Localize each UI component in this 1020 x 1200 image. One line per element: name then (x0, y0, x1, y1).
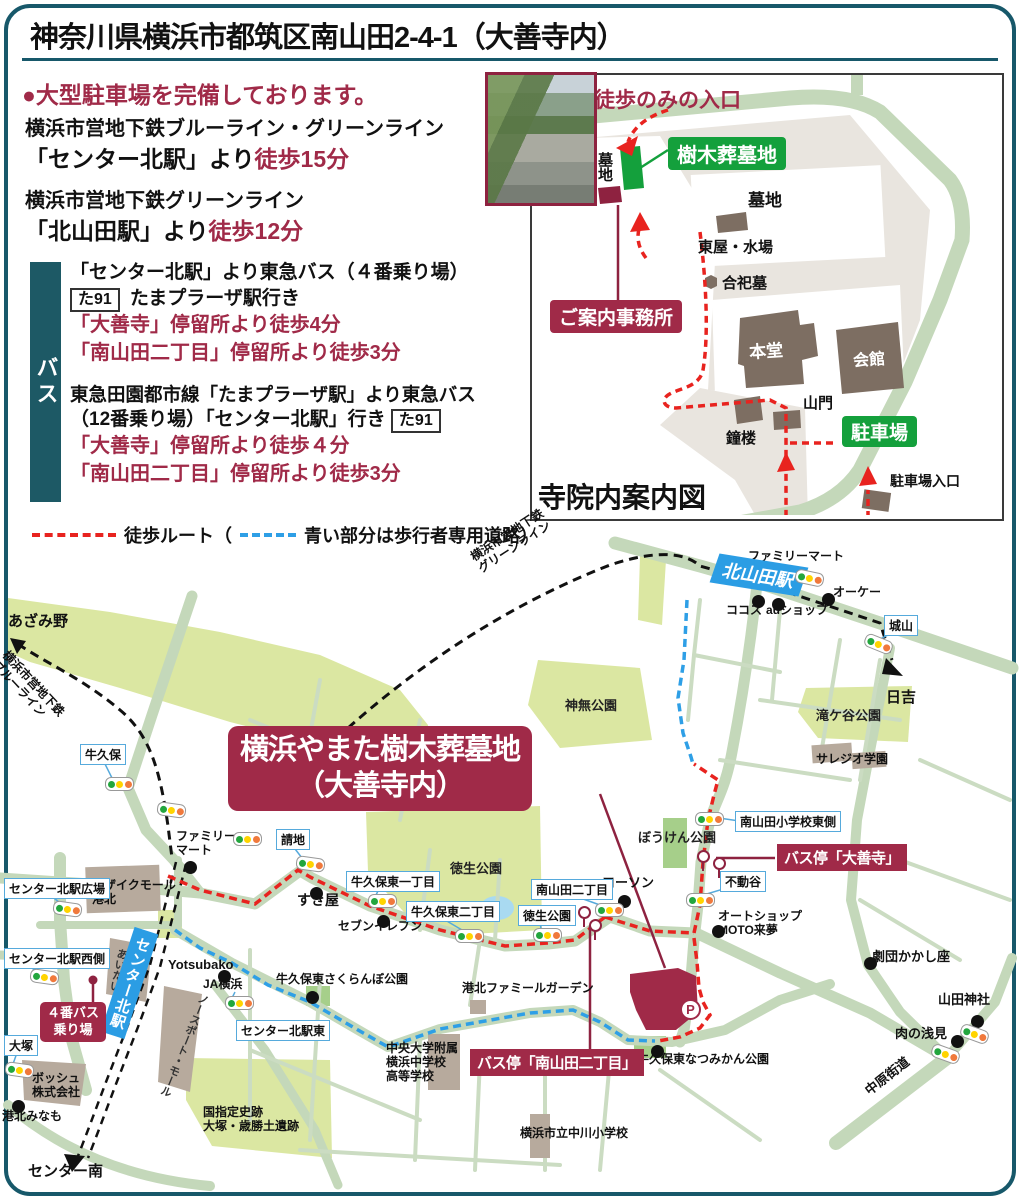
bus-route1-line2: た91たまプラーザ駅行き (70, 286, 520, 312)
traffic-light-icon (105, 777, 134, 791)
crimson-badge: ４番バス 乗り場 (40, 1002, 106, 1042)
subway1-walk: 徒歩15分 (255, 146, 350, 172)
bus-section-label: バス (30, 262, 61, 502)
traffic-light-icon (233, 832, 262, 846)
poi-dot-icon (752, 595, 765, 608)
edge-label: センター南 (28, 1160, 103, 1181)
info-office-badge: ご案内事務所 (550, 300, 682, 333)
red-dash-icon (32, 533, 116, 537)
map-box-label: センター北駅東 (236, 1020, 330, 1041)
parking-badge: 駐車場 (842, 416, 917, 447)
poi-dot-icon (864, 957, 877, 970)
poi-label: ファミリー マート (176, 830, 236, 858)
legend-walk-label: 徒歩ルート（ (124, 522, 232, 548)
parking-entrance-label: 駐車場入口 (890, 471, 960, 491)
crimson-badge: 横浜やまた樹木葬墓地 （大善寺内） (228, 726, 532, 811)
edge-label: あざみ野 (8, 610, 68, 631)
bus-stop-icon (697, 850, 710, 863)
title-divider (22, 58, 998, 61)
poi-label: 山田神社 (938, 993, 990, 1008)
subway2-from: 「北山田駅」より (25, 218, 209, 244)
bus-route2-line1: 東急田園都市線「たまプラーザ駅」より東急バス (70, 382, 520, 408)
poi-label: 港北みなも (2, 1110, 62, 1124)
bus-route1-stop1: 「大善寺」停留所より徒歩4分 (70, 312, 520, 340)
goshibo-label: 合祀墓 (722, 272, 767, 293)
poi-label: サレジオ学園 (816, 753, 888, 767)
poi-dot-icon (772, 598, 785, 611)
map-box-label: 不動谷 (720, 871, 766, 892)
traffic-light-icon (4, 1061, 35, 1079)
grave-label-large: 墓地 (748, 186, 782, 211)
walk-only-entrance-label: 徒歩のみの入口 (594, 84, 741, 114)
map-box-label: センター北駅西側 (4, 948, 110, 969)
poi-label: ボッシュ 株式会社 (32, 1072, 80, 1100)
rail-label: 中原街道 (862, 1054, 913, 1098)
traffic-light-icon (595, 903, 624, 917)
map-box-label: 徳生公園 (518, 905, 576, 926)
area-label: 徳生公園 (450, 858, 502, 877)
traffic-light-icon (533, 928, 562, 942)
traffic-light-icon (686, 893, 715, 907)
bus-route1-line1: 「センター北駅」より東急バス（４番乗り場） (70, 260, 520, 286)
map-box-label: 牛久保東一丁目 (346, 871, 440, 892)
traffic-light-icon (156, 801, 187, 819)
bus-stop-icon (578, 906, 591, 919)
poi-label: オーケー (833, 586, 881, 600)
grave-label-small: 墓地 (594, 152, 615, 182)
kaikan-label: 会館 (852, 345, 886, 371)
subway2-walk: 徒歩12分 (209, 218, 304, 244)
bus-route1-stop2: 「南山田二丁目」停留所より徒歩3分 (70, 340, 520, 368)
crimson-badge: バス停「南山田二丁目」 (470, 1049, 644, 1076)
bus-stop-icon (713, 857, 726, 870)
bus-route-number-badge: た91 (391, 409, 441, 433)
poi-label: 劇団かかし座 (872, 950, 950, 965)
traffic-light-icon (295, 855, 326, 873)
map-box-label: 南山田二丁目 (531, 879, 613, 900)
azumaya-label: 東屋・水場 (698, 236, 773, 257)
area-label: 滝ケ谷公園 (816, 705, 881, 724)
traffic-light-icon (29, 968, 60, 986)
shoro-label: 鐘楼 (726, 427, 756, 448)
traffic-light-icon (455, 929, 484, 943)
bus-route-number-badge: た91 (70, 288, 120, 312)
traffic-light-icon (368, 894, 397, 908)
entrance-photo (485, 72, 597, 206)
traffic-light-icon (225, 996, 254, 1010)
subway1-from: 「センター北駅」より (25, 146, 255, 172)
rail-label: 横浜市営地下鉄 ブルーライン (0, 648, 67, 729)
bus-stop-icon (589, 919, 602, 932)
poi-dot-icon (822, 593, 835, 606)
poi-dot-icon (651, 1045, 664, 1058)
bus-route2-boarding: （12番乗り場）「センター北駅」行き (70, 409, 386, 430)
page-title: 神奈川県横浜市都筑区南山田2-4-1（大善寺内） (30, 14, 625, 56)
edge-label: 日吉 (886, 686, 916, 707)
map-box-label: 大塚 (4, 1035, 38, 1056)
bus-route2-stop2: 「南山田二丁目」停留所より徒歩3分 (70, 461, 520, 489)
crimson-badge: バス停「大善寺」 (777, 844, 907, 871)
poi-dot-icon (310, 887, 323, 900)
tree-burial-badge: 樹木葬墓地 (668, 137, 786, 170)
subway2-access: 「北山田駅」より徒歩12分 (25, 212, 303, 246)
route-legend: 徒歩ルート（ 青い部分は歩行者専用道路） (32, 522, 538, 548)
area-label: ぼうけん公園 (638, 827, 716, 846)
bus-route2-stop1: 「大善寺」停留所より徒歩４分 (70, 433, 520, 461)
bus-route1-dest: たまプラーザ駅行き (130, 288, 300, 309)
temple-map-title: 寺院内案内図 (538, 476, 706, 516)
subway1-line: 横浜市営地下鉄ブルーライン・グリーンライン (25, 112, 444, 141)
rotated-place-label: ノースポート・モール (156, 991, 212, 1099)
poi-label: 牛久保東さくらんぼ公園 (276, 973, 408, 987)
subway1-access: 「センター北駅」より徒歩15分 (25, 140, 349, 174)
bus-route2-line2: （12番乗り場）「センター北駅」行き た91 (70, 407, 520, 433)
poi-label: 肉の浅見 (895, 1027, 947, 1042)
area-label: 神無公園 (565, 695, 617, 714)
map-box-label: センター北駅広場 (4, 878, 110, 899)
poi-label: 中央大学附属 横浜中学校 高等学校 (386, 1042, 458, 1083)
map-box-label: 城山 (884, 615, 918, 636)
poi-label: 港北ファミールガーデン (462, 982, 594, 996)
parking-icon: P (680, 999, 701, 1020)
map-box-label: 南山田小学校東側 (735, 811, 841, 832)
poi-label: 横浜市立中川小学校 (520, 1127, 628, 1141)
poi-label: オートショップ MOTO来夢 (718, 910, 802, 938)
map-box-label: 牛久保 (80, 744, 126, 765)
bus-routes: 「センター北駅」より東急バス（４番乗り場） た91たまプラーザ駅行き 「大善寺」… (70, 260, 520, 489)
map-overlay: 神奈川県横浜市都筑区南山田2-4-1（大善寺内） ●大型駐車場を完備しております… (0, 0, 1020, 1200)
hondo-label: 本堂 (748, 336, 784, 363)
poi-dot-icon (184, 861, 197, 874)
sanmon-label: 山門 (803, 392, 833, 413)
map-box-label: 牛久保東二丁目 (406, 901, 500, 922)
poi-dot-icon (377, 915, 390, 928)
parking-note: ●大型駐車場を完備しております。 (22, 76, 377, 110)
traffic-light-icon (52, 900, 83, 918)
poi-dot-icon (306, 991, 319, 1004)
poi-dot-icon (218, 970, 231, 983)
subway2-line: 横浜市営地下鉄グリーンライン (25, 184, 304, 213)
poi-dot-icon (12, 1100, 25, 1113)
blue-dash-icon (240, 533, 296, 537)
poi-label: 国指定史跡 大塚・歳勝土遺跡 (203, 1106, 299, 1134)
map-box-label: 請地 (276, 829, 310, 850)
traffic-light-icon (695, 812, 724, 826)
poi-dot-icon (712, 925, 725, 938)
